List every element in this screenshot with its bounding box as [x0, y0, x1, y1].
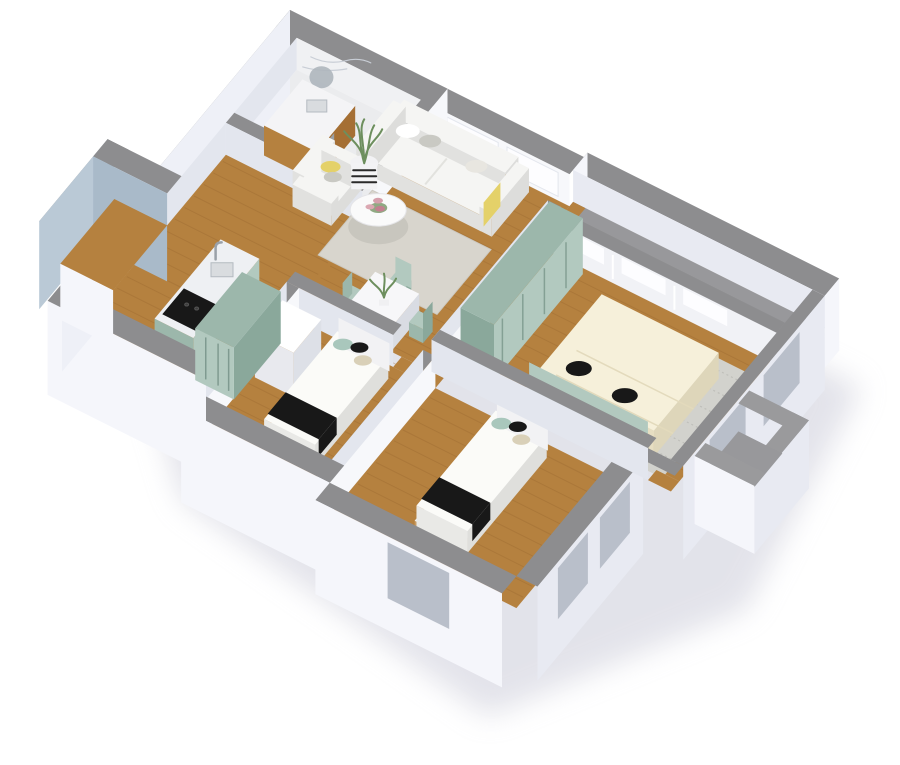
floorplan-3d-scene	[0, 0, 900, 765]
pillow-black	[509, 422, 527, 432]
bed-pillow-black	[612, 388, 638, 403]
flowers-pink	[365, 204, 374, 209]
sofa-pillow	[465, 160, 487, 173]
table-plant-pot-group	[379, 300, 389, 306]
armchair-pillow-yellow	[321, 161, 341, 173]
pillow-mint	[333, 339, 353, 351]
vanity-basin-group	[307, 100, 327, 112]
kitchen-sink-group	[211, 263, 233, 277]
pillow-beige	[354, 355, 372, 365]
armchair-pillow-gray	[324, 172, 342, 182]
apartment	[39, 10, 861, 717]
pillow-beige	[512, 434, 530, 444]
flowers-pink	[375, 206, 385, 212]
kitchen-sink	[211, 263, 233, 277]
table-plant-pot	[379, 300, 389, 306]
sofa-pillow	[396, 124, 420, 138]
pillow-black	[350, 342, 368, 352]
sofa-pillow	[419, 135, 441, 148]
floorplan-render	[0, 0, 900, 765]
bed-pillow-black	[566, 361, 592, 376]
flowers-pink	[373, 198, 383, 204]
pillow-mint	[491, 418, 511, 430]
vanity-basin	[307, 100, 327, 112]
